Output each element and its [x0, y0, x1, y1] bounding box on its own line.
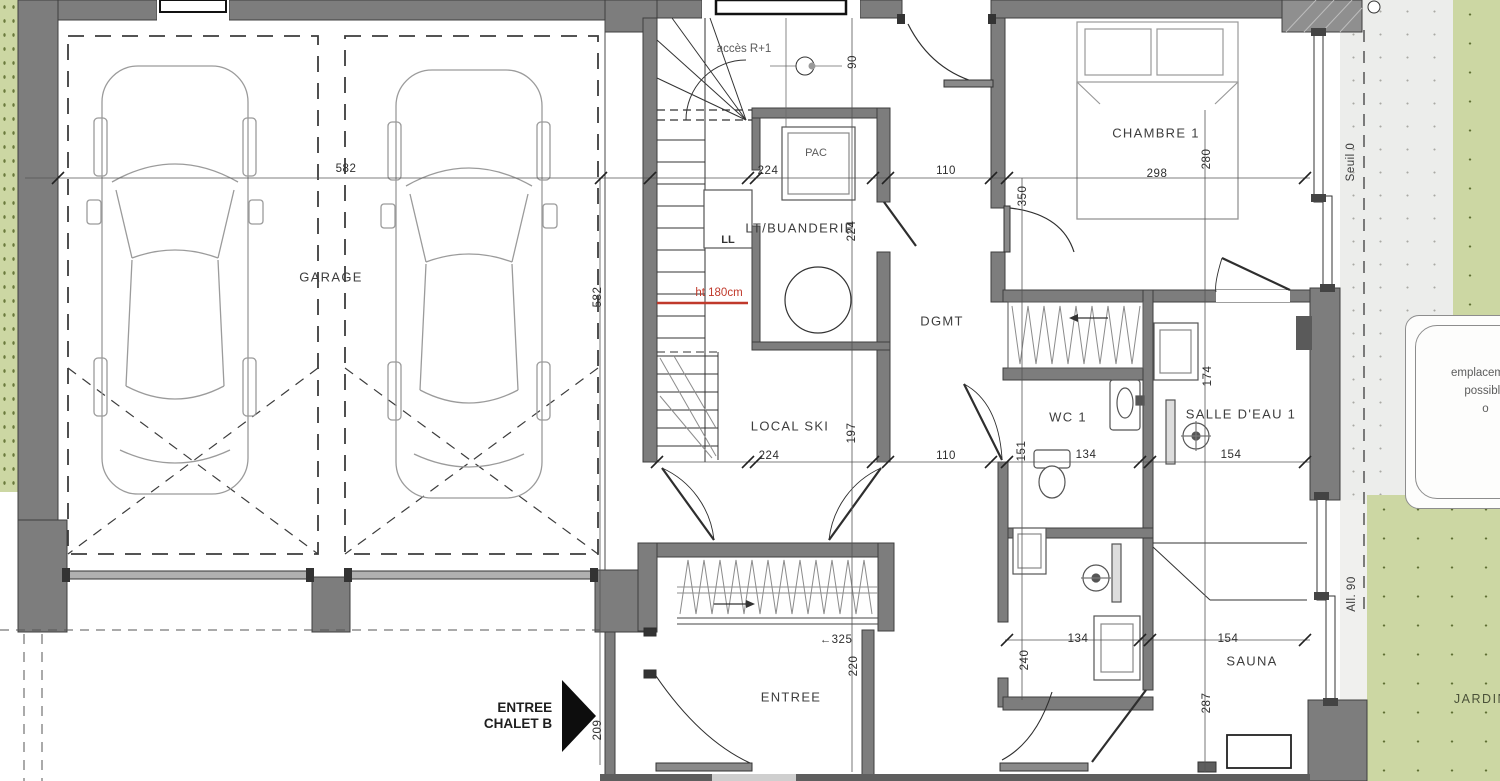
- door-gap-salle-deau: [1216, 290, 1290, 302]
- car-top-view: [381, 70, 557, 498]
- room-label-pac: PAC: [805, 147, 827, 159]
- dim-garage-height: 582: [592, 287, 604, 308]
- dim-buanderie-height: 224: [846, 221, 858, 242]
- dim-wc-width: 134: [1076, 449, 1097, 461]
- walls: [18, 0, 1367, 781]
- height-limit-label: ht 180cm: [695, 287, 742, 299]
- dim-chambre-width: 298: [1147, 168, 1168, 180]
- dim-dgmt-height: 350: [1017, 186, 1029, 207]
- dim-bath2-width: 134: [1068, 633, 1089, 645]
- room-label-sauna: SAUNA: [1226, 654, 1277, 669]
- entree-chalet-line2: CHALET B: [484, 716, 552, 732]
- sauna-partition: [1153, 543, 1307, 600]
- dim-sauna-width: 154: [1218, 633, 1239, 645]
- room-label-salle-deau1: SALLE D'EAU 1: [1186, 407, 1296, 422]
- entree-chalet-line1: ENTREE: [484, 700, 552, 716]
- room-label-garage: GARAGE: [299, 270, 362, 285]
- dim-dgmt-width: 110: [936, 165, 956, 177]
- hatched-corner-wall: [1282, 0, 1380, 32]
- arrow-left-icon: ←: [820, 634, 832, 646]
- dim-bath2-height: 240: [1019, 650, 1031, 671]
- entrance-arrow-icon: [562, 680, 596, 752]
- room-label-buanderie: LT/BUANDERIE: [745, 221, 854, 236]
- hall-wardrobe-hatch: [677, 560, 878, 624]
- bottom-wall: [600, 774, 1310, 781]
- room-label-dgmt: DGMT: [920, 314, 963, 329]
- parking-bays: [68, 36, 598, 554]
- washing-machine-label: LL: [721, 234, 734, 246]
- dim-sauna-height: 287: [1201, 693, 1213, 714]
- stair-access-label: accès R+1: [717, 43, 772, 55]
- dim-dgmt-width2: 110: [936, 450, 956, 462]
- wall-pier: [1296, 316, 1312, 350]
- dim-localski-height: 197: [846, 423, 858, 444]
- emplacement-box-inner: emplacement possible o: [1415, 325, 1500, 499]
- jardin-label: JARDIN: [1454, 692, 1500, 706]
- room-label-wc1: WC 1: [1049, 410, 1087, 425]
- dim-wc-height: 151: [1016, 441, 1028, 462]
- car-top-view: [87, 66, 263, 494]
- dim-salle-deau-height: 174: [1202, 366, 1214, 387]
- emplacement-box: emplacement possible o: [1405, 315, 1500, 509]
- floor-plan: GARAGE CHAMBRE 1 LT/BUANDERIE PAC DGMT W…: [0, 0, 1500, 781]
- bottom-wall-glazed-gap: [712, 774, 796, 781]
- arrow-right-icon: [714, 600, 755, 608]
- emplacement-text-2: possible: [1464, 382, 1500, 400]
- dim-hall-width: ←325: [820, 634, 853, 646]
- dim-salle-deau-width: 154: [1221, 449, 1242, 461]
- room-label-local-ski: LOCAL SKI: [751, 419, 829, 434]
- emplacement-text-3: o: [1482, 400, 1488, 418]
- dim-stair-width: 224: [758, 165, 779, 177]
- dim-localski-width: 224: [759, 450, 780, 462]
- dim-entree-height: 220: [848, 656, 860, 677]
- bed: [1077, 22, 1238, 219]
- allege-label: All. 90: [1346, 576, 1358, 611]
- dim-chambre-height: 280: [1201, 149, 1213, 170]
- room-label-entree: ENTREE: [761, 690, 822, 705]
- dim-top-door: 90: [847, 55, 859, 69]
- dim-garage-width: 582: [336, 163, 357, 175]
- seuil-label: Seuil 0: [1345, 143, 1357, 182]
- room-label-chambre1: CHAMBRE 1: [1112, 126, 1200, 141]
- emplacement-text-1: emplacement: [1451, 364, 1500, 382]
- dressing-wardrobe-hatch: [1008, 302, 1143, 368]
- entree-chalet-label: ENTREE CHALET B: [484, 700, 552, 732]
